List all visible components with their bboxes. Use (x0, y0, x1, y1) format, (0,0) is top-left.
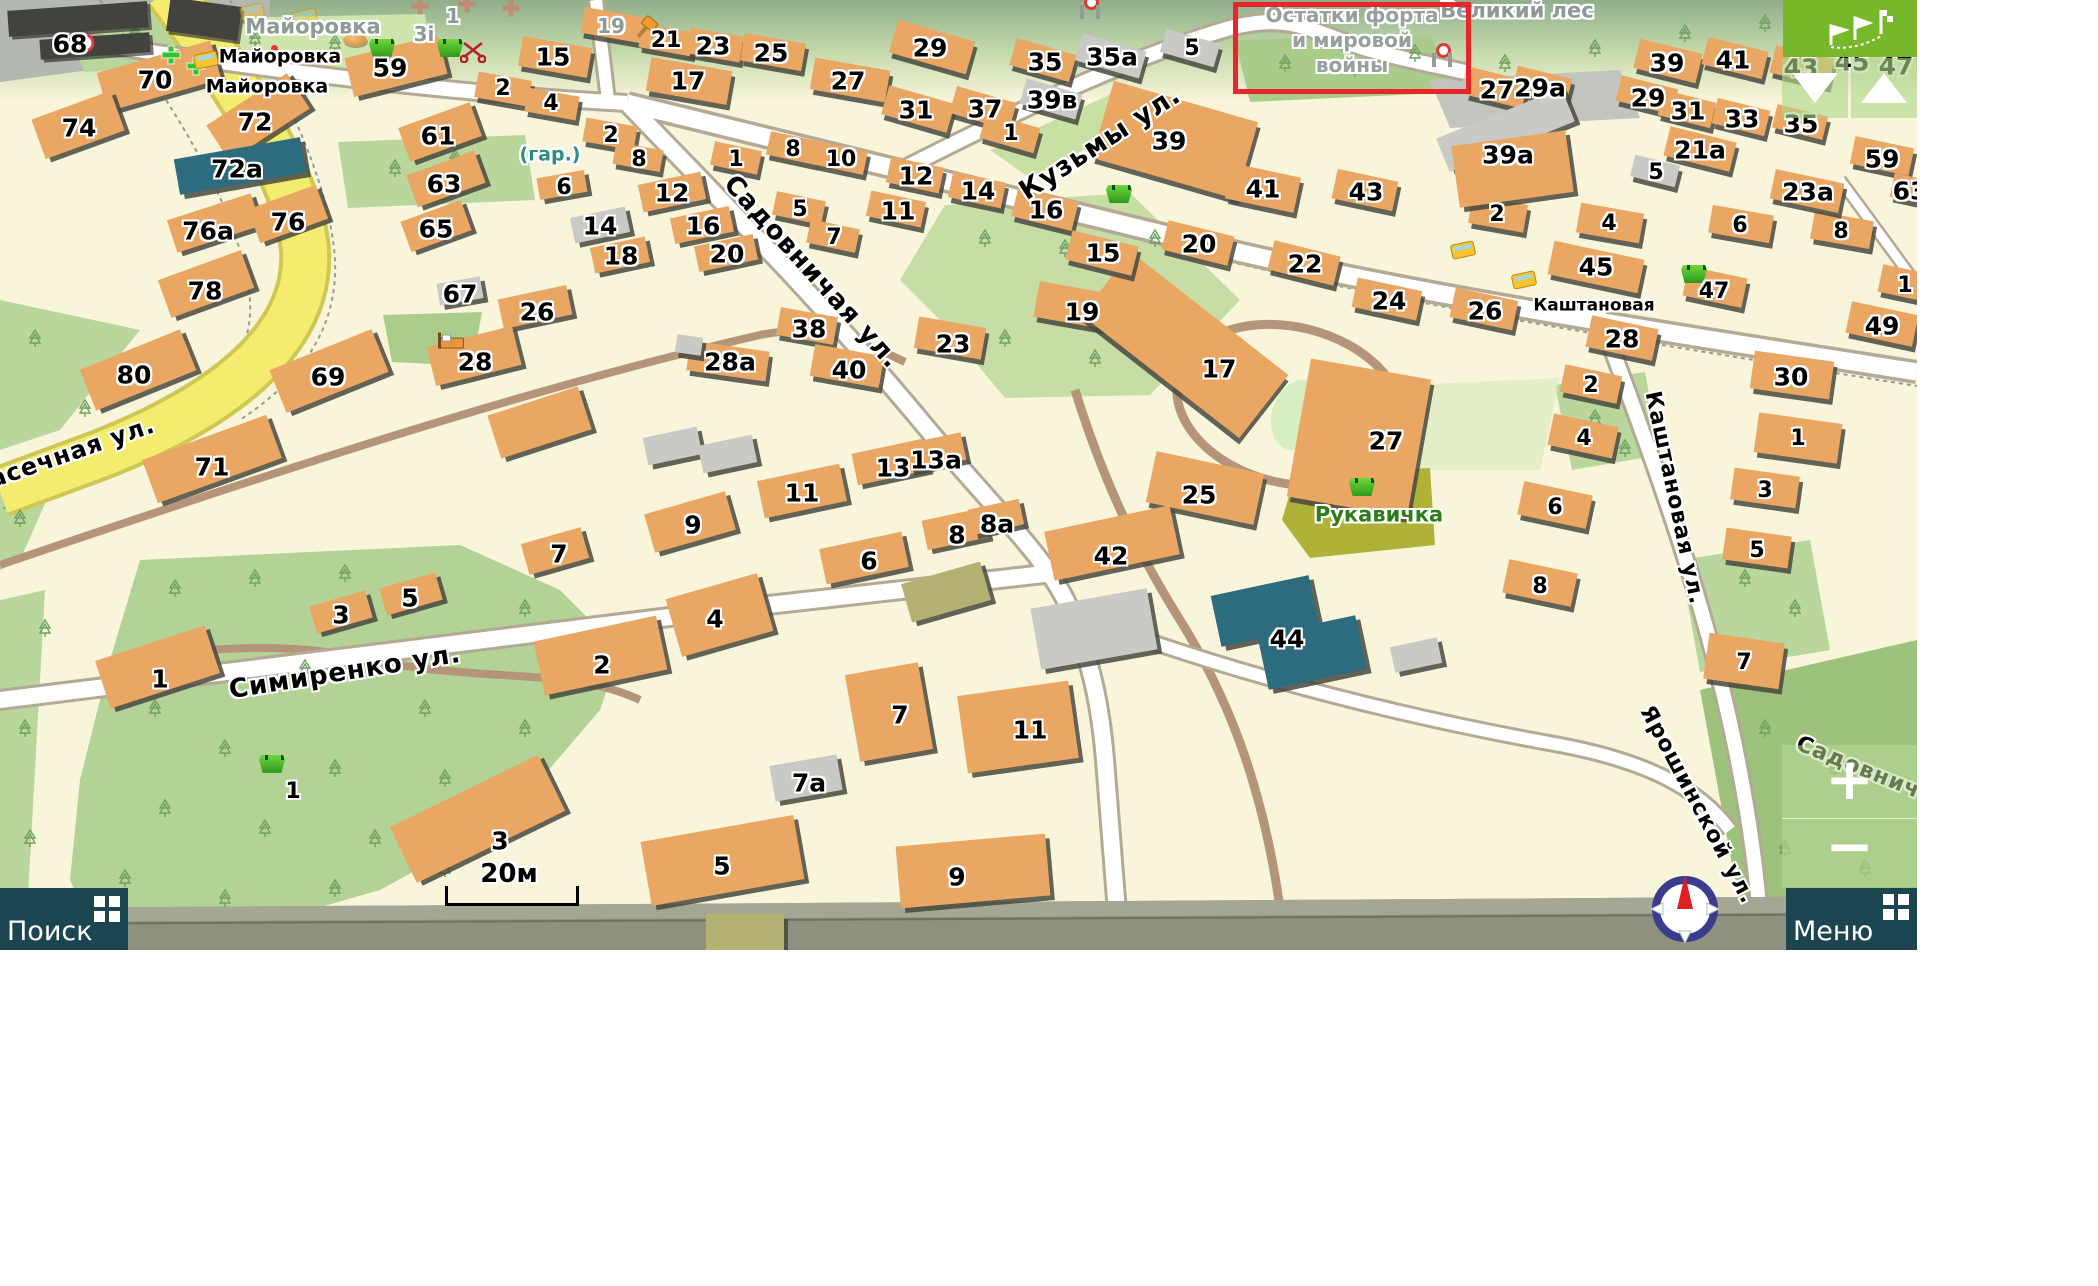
building-number: 17 (1202, 357, 1237, 382)
place-label: 19 (597, 16, 625, 36)
building-number: 4 (706, 607, 723, 632)
zoom-in-button[interactable]: + (1782, 745, 1917, 819)
building-number: 9 (948, 865, 965, 890)
building-number: 7 (550, 542, 567, 567)
grid-icon (94, 896, 120, 922)
building-number: 5 (792, 199, 807, 221)
building-number: 7 (891, 703, 908, 728)
building-number: 80 (117, 363, 152, 388)
place-label: (гар.) (520, 146, 581, 165)
building-number: 14 (961, 179, 996, 204)
place-label: 1 (446, 6, 460, 26)
building-number: 30 (1774, 365, 1809, 390)
building-number: 63 (1893, 179, 1917, 204)
building-number: 71 (195, 455, 230, 480)
building-number: 44 (1270, 627, 1305, 652)
building-number: 1 (285, 781, 300, 803)
place-label: Каштановая (1533, 298, 1654, 315)
building-number: 3 (1757, 480, 1772, 502)
building-number: 8 (948, 523, 965, 548)
triangle-down-icon (1792, 73, 1838, 103)
building-number: 37 (968, 97, 1003, 122)
building-number: 15 (1086, 241, 1121, 266)
building-number: 76 (271, 210, 306, 235)
building-number: 63 (427, 172, 462, 197)
building-number: 17 (671, 69, 706, 94)
building-number: 23а (1782, 180, 1834, 205)
building-number: 78 (188, 279, 223, 304)
building-number: 25 (754, 41, 789, 66)
building-number: 11 (881, 199, 916, 224)
building-number: 8 (1532, 576, 1547, 598)
building-number: 7 (826, 227, 841, 249)
building-number: 8а (980, 512, 1014, 537)
building-number: 4 (543, 93, 558, 115)
place-label: 3і (414, 24, 435, 44)
building-number: 59 (1865, 147, 1900, 172)
place-label: Майоровка (219, 48, 342, 67)
building-number: 2 (1583, 375, 1598, 397)
building-number: 16 (686, 214, 721, 239)
place-label: Майоровка (245, 17, 380, 38)
building-number: 15 (536, 45, 571, 70)
building-number: 27 (1480, 78, 1515, 103)
building-number: 33 (1725, 107, 1760, 132)
building-number: 40 (832, 358, 867, 383)
building-number: 1 (1897, 275, 1912, 297)
building-number: 23 (696, 34, 731, 59)
search-button[interactable]: Поиск (0, 888, 128, 950)
street-name: Каштановая ул. (1641, 389, 1708, 606)
building-number: 38 (792, 317, 827, 342)
building-number: 28а (704, 350, 756, 375)
building-number: 4 (1576, 428, 1591, 450)
building-number: 61 (421, 124, 456, 149)
building-number: 1 (1003, 123, 1018, 145)
building-number: 14 (583, 214, 618, 239)
route-flags-icon (1783, 0, 1917, 57)
building-number: 2 (603, 125, 618, 147)
building-number: 8 (631, 149, 646, 171)
building-number: 5 (401, 586, 418, 611)
building-number: 25 (1182, 483, 1217, 508)
compass[interactable] (1647, 869, 1723, 945)
labels-layer: 6870747272а59616365677676а78806971241517… (0, 0, 1917, 950)
building-number: 28 (458, 350, 493, 375)
building-number: 7 (1736, 652, 1751, 674)
scale-value: 20м (480, 861, 537, 887)
street-name: асечная ул. (0, 412, 158, 491)
building-number: 45 (1579, 255, 1614, 280)
building-number: 2 (593, 653, 610, 678)
building-number: 39а (1482, 143, 1534, 168)
place-label: Майоровка (206, 78, 329, 97)
building-number: 65 (419, 217, 454, 242)
building-number: 29 (1631, 86, 1666, 111)
route-button[interactable] (1783, 0, 1917, 57)
building-number: 6 (860, 549, 877, 574)
building-number: 26 (520, 300, 555, 325)
building-number: 29 (913, 36, 948, 61)
building-number: 67 (443, 282, 478, 307)
menu-button[interactable]: Меню (1786, 888, 1917, 950)
building-number: 69 (311, 365, 346, 390)
building-number: 31 (1671, 99, 1706, 124)
building-number: 13а (910, 448, 962, 473)
building-number: 35 (1028, 50, 1063, 75)
building-number: 3 (491, 829, 508, 854)
building-number: 10 (826, 149, 857, 171)
building-number: 6 (1547, 497, 1562, 519)
building-number: 3 (332, 603, 349, 628)
building-number: 8 (785, 139, 800, 161)
building-number: 39в (1027, 88, 1078, 113)
building-number: 27 (831, 69, 866, 94)
building-number: 41 (1246, 177, 1281, 202)
building-number: 5 (1749, 540, 1764, 562)
building-number: 21а (1674, 138, 1726, 163)
building-number: 11 (785, 481, 820, 506)
street-name: Симиренко ул. (227, 641, 463, 703)
building-number: 59 (373, 56, 408, 81)
building-number: 29а (1514, 76, 1566, 101)
building-number: 47 (1699, 281, 1730, 303)
building-number: 35а (1086, 45, 1138, 70)
building-number: 27 (1369, 429, 1404, 454)
building-number: 41 (1716, 48, 1751, 73)
building-number: 23 (936, 332, 971, 357)
building-number: 20 (1182, 232, 1217, 257)
building-number: 2 (1489, 204, 1504, 226)
building-number: 2 (495, 78, 510, 100)
building-number: 22 (1288, 252, 1323, 277)
building-number: 72 (238, 110, 273, 135)
building-number: 20 (710, 242, 745, 267)
building-number: 74 (62, 116, 97, 141)
building-number: 7а (792, 771, 826, 796)
building-number: 5 (1184, 38, 1199, 60)
scroll-up-button[interactable] (1851, 58, 1917, 118)
building-number: 6 (556, 177, 571, 199)
building-number: 1 (151, 667, 168, 692)
triangle-up-icon (1861, 73, 1907, 103)
building-number: 28 (1605, 327, 1640, 352)
place-label: Рукавичка (1315, 505, 1443, 526)
building-number: 1 (1790, 428, 1805, 450)
menu-button-label: Меню (1793, 916, 1873, 947)
building-number: 39 (1152, 129, 1187, 154)
building-number: 1 (728, 149, 743, 171)
building-number: 68 (53, 32, 88, 57)
app-window: 6870747272а59616365677676а78806971241517… (0, 0, 2098, 1286)
building-number: 5 (1648, 162, 1663, 184)
building-number: 26 (1468, 299, 1503, 324)
zoom-out-button[interactable]: − (1782, 819, 1917, 887)
building-number: 6 (1732, 215, 1747, 237)
building-number: 4 (1601, 213, 1616, 235)
map-canvas[interactable]: 6870747272а59616365677676а78806971241517… (0, 0, 1917, 950)
building-number: 42 (1094, 544, 1129, 569)
building-number: 24 (1372, 289, 1407, 314)
building-number: 9 (684, 513, 701, 538)
building-number: 11 (1013, 718, 1048, 743)
building-number: 70 (138, 68, 173, 93)
scale-bar (445, 886, 579, 906)
building-number: 18 (604, 244, 639, 269)
highlight-box (1233, 2, 1471, 94)
grid-icon (1883, 894, 1909, 920)
building-number: 12 (655, 181, 690, 206)
building-number: 43 (1349, 180, 1384, 205)
search-button-label: Поиск (7, 916, 93, 947)
building-number: 21 (651, 30, 682, 52)
building-number: 76а (182, 219, 234, 244)
building-number: 72а (211, 157, 263, 182)
scroll-down-button[interactable] (1782, 58, 1848, 118)
building-number: 5 (713, 854, 730, 879)
building-number: 19 (1065, 300, 1100, 325)
building-number: 8 (1833, 221, 1848, 243)
building-number: 39 (1650, 51, 1685, 76)
building-number: 49 (1865, 314, 1900, 339)
building-number: 12 (899, 164, 934, 189)
building-number: 13 (876, 456, 911, 481)
building-number: 31 (899, 98, 934, 123)
